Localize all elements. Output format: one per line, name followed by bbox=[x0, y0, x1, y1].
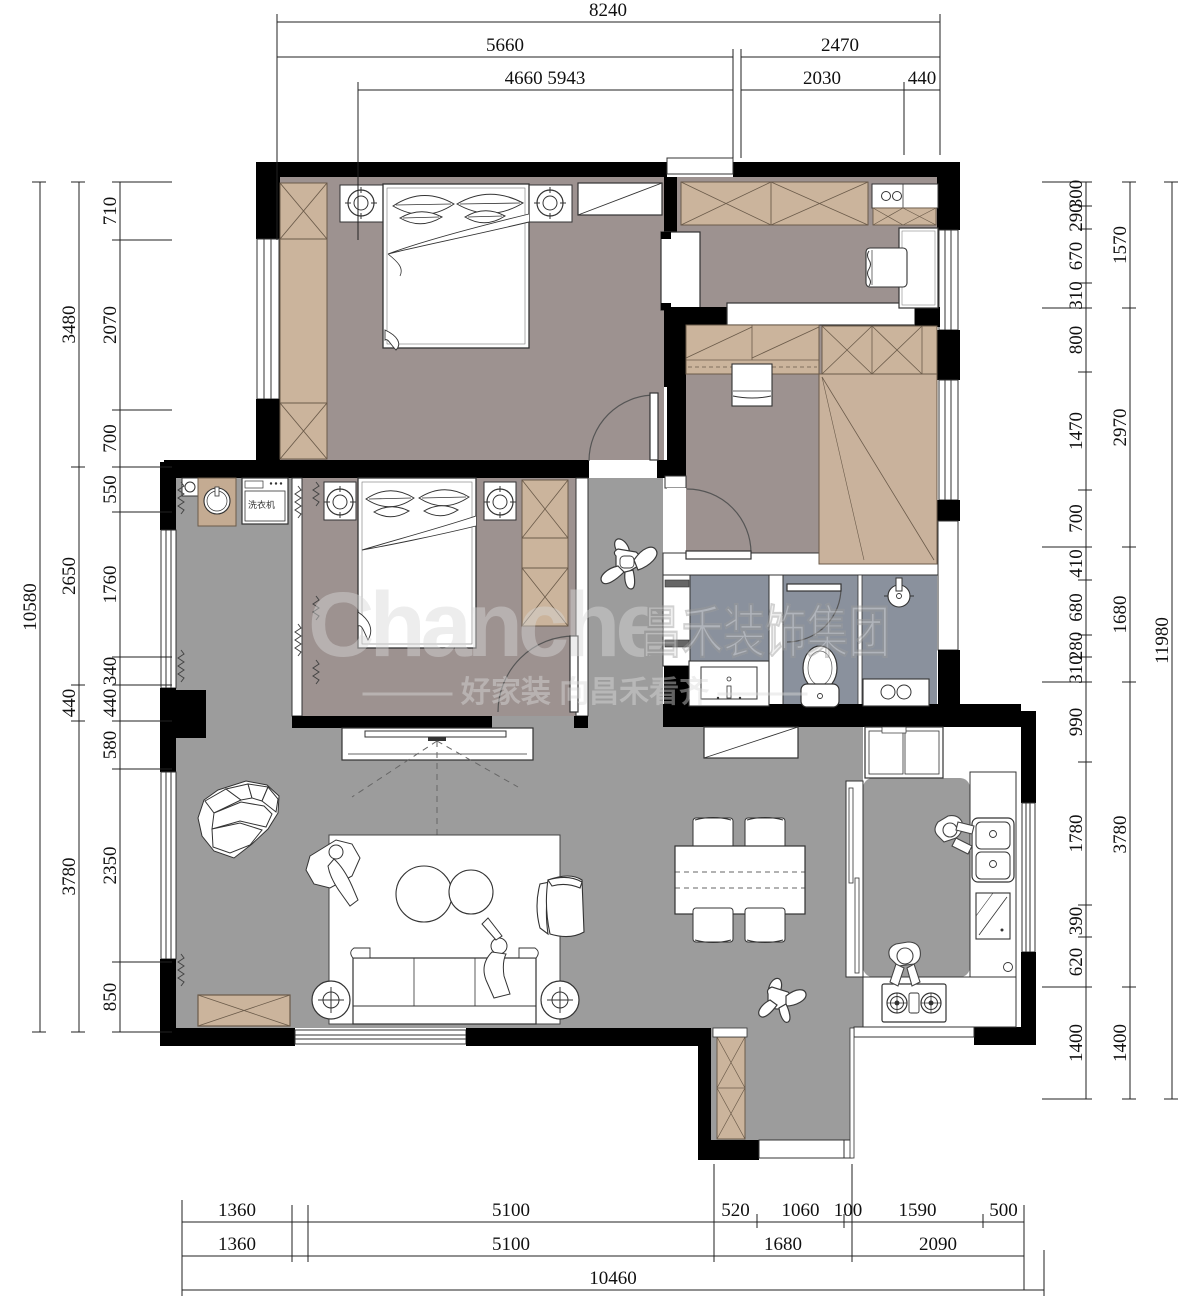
svg-text:310: 310 bbox=[1066, 655, 1087, 684]
svg-text:580: 580 bbox=[100, 731, 121, 760]
svg-text:5100: 5100 bbox=[492, 1234, 530, 1255]
svg-text:2030: 2030 bbox=[803, 68, 841, 89]
svg-text:8240: 8240 bbox=[589, 0, 627, 21]
svg-text:洗衣机: 洗衣机 bbox=[248, 499, 275, 510]
svg-text:2070: 2070 bbox=[100, 306, 121, 344]
svg-text:310: 310 bbox=[1066, 281, 1087, 310]
svg-text:710: 710 bbox=[100, 197, 121, 226]
svg-text:3480: 3480 bbox=[59, 306, 80, 344]
svg-text:1470: 1470 bbox=[1066, 412, 1087, 450]
svg-text:290: 290 bbox=[1066, 203, 1087, 232]
svg-text:昌禾装饰集团: 昌禾装饰集团 bbox=[640, 601, 890, 665]
svg-text:1360: 1360 bbox=[218, 1234, 256, 1255]
svg-text:1760: 1760 bbox=[100, 566, 121, 604]
svg-text:620: 620 bbox=[1066, 948, 1087, 977]
svg-text:10580: 10580 bbox=[20, 583, 41, 631]
svg-text:5660: 5660 bbox=[486, 35, 524, 56]
svg-text:1400: 1400 bbox=[1110, 1024, 1131, 1062]
svg-text:800: 800 bbox=[1066, 326, 1087, 355]
svg-text:1780: 1780 bbox=[1066, 815, 1087, 853]
svg-text:500: 500 bbox=[989, 1200, 1018, 1221]
svg-text:11980: 11980 bbox=[1152, 617, 1173, 664]
svg-text:390: 390 bbox=[1066, 907, 1087, 936]
svg-text:670: 670 bbox=[1066, 242, 1087, 271]
svg-text:680: 680 bbox=[1066, 593, 1087, 622]
svg-text:440: 440 bbox=[908, 68, 937, 89]
svg-text:340: 340 bbox=[100, 657, 121, 686]
svg-text:100: 100 bbox=[834, 1200, 863, 1221]
svg-text:1400: 1400 bbox=[1066, 1024, 1087, 1062]
svg-text:——— 好家装 向昌禾看齐 ———: ——— 好家装 向昌禾看齐 ——— bbox=[362, 676, 807, 709]
svg-text:410: 410 bbox=[1066, 549, 1087, 578]
svg-text:2650: 2650 bbox=[59, 557, 80, 595]
svg-text:3780: 3780 bbox=[1110, 816, 1131, 854]
svg-text:2090: 2090 bbox=[919, 1234, 957, 1255]
svg-text:550: 550 bbox=[100, 475, 121, 504]
svg-text:990: 990 bbox=[1066, 708, 1087, 737]
svg-text:5100: 5100 bbox=[492, 1200, 530, 1221]
svg-text:1360: 1360 bbox=[218, 1200, 256, 1221]
svg-text:2970: 2970 bbox=[1110, 409, 1131, 447]
svg-text:440: 440 bbox=[59, 689, 80, 718]
svg-text:1680: 1680 bbox=[764, 1234, 802, 1255]
svg-text:700: 700 bbox=[100, 424, 121, 453]
svg-text:520: 520 bbox=[721, 1200, 750, 1221]
svg-text:4660 5943: 4660 5943 bbox=[505, 68, 586, 89]
svg-text:1570: 1570 bbox=[1110, 226, 1131, 264]
svg-text:440: 440 bbox=[100, 689, 121, 718]
svg-text:1680: 1680 bbox=[1110, 596, 1131, 634]
svg-text:3780: 3780 bbox=[59, 858, 80, 896]
svg-text:10460: 10460 bbox=[589, 1268, 637, 1289]
svg-text:2350: 2350 bbox=[100, 847, 121, 885]
svg-text:2470: 2470 bbox=[821, 35, 859, 56]
svg-text:850: 850 bbox=[100, 983, 121, 1012]
svg-text:700: 700 bbox=[1066, 504, 1087, 533]
svg-text:Chanche: Chanche bbox=[308, 574, 664, 676]
svg-text:1060: 1060 bbox=[782, 1200, 820, 1221]
svg-text:1590: 1590 bbox=[899, 1200, 937, 1221]
